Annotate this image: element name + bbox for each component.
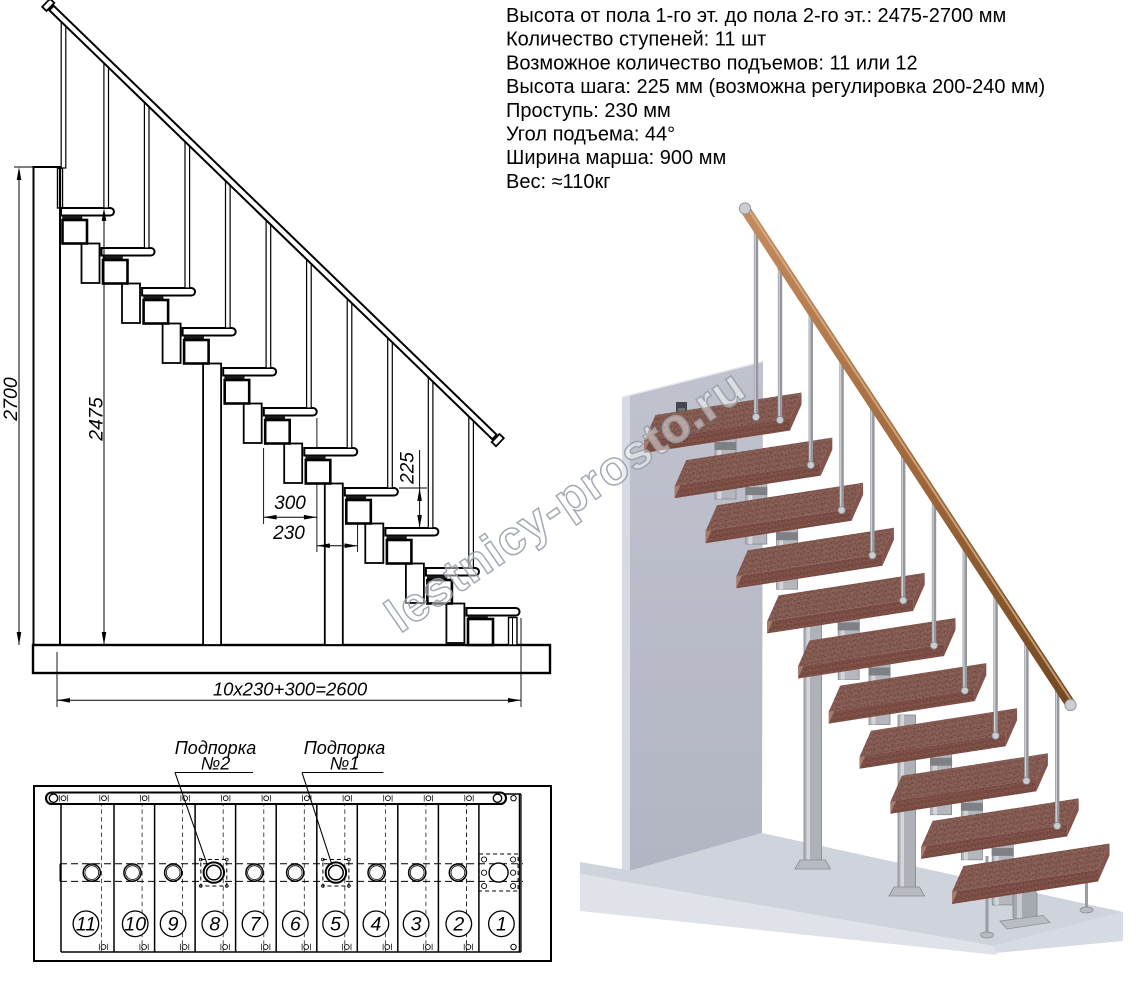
svg-text:7: 7: [250, 914, 262, 936]
svg-text:9: 9: [168, 914, 179, 936]
svg-text:Высота шага: 225 мм (возможна: Высота шага: 225 мм (возможна регулировк…: [506, 76, 1045, 98]
svg-text:№2: №2: [201, 754, 231, 774]
svg-text:Количество ступеней: 11 шт: Количество ступеней: 11 шт: [506, 29, 766, 51]
svg-text:8: 8: [209, 914, 220, 936]
svg-text:300: 300: [274, 493, 306, 514]
svg-text:3: 3: [411, 914, 422, 936]
svg-text:Вес: ≈110кг: Вес: ≈110кг: [506, 171, 610, 193]
svg-text:11: 11: [76, 914, 96, 936]
svg-text:230: 230: [272, 523, 305, 544]
svg-text:225: 225: [398, 452, 419, 485]
svg-text:10x230+300=2600: 10x230+300=2600: [213, 679, 368, 700]
svg-text:5: 5: [330, 914, 341, 936]
svg-text:2475: 2475: [86, 397, 108, 442]
svg-text:1: 1: [496, 914, 507, 936]
svg-text:№1: №1: [330, 754, 360, 774]
svg-text:Ширина марша: 900 мм: Ширина марша: 900 мм: [506, 147, 726, 169]
svg-text:10: 10: [124, 914, 146, 936]
svg-text:2: 2: [452, 914, 464, 936]
svg-text:2700: 2700: [0, 377, 22, 422]
svg-text:Угол подъема: 44°: Угол подъема: 44°: [506, 124, 675, 146]
svg-text:Возможное количество подъемов:: Возможное количество подъемов: 11 или 12: [506, 52, 918, 74]
svg-text:4: 4: [370, 914, 381, 936]
svg-text:Высота от пола 1-го эт. до пол: Высота от пола 1-го эт. до пола 2-го эт.…: [506, 5, 1006, 27]
svg-text:Проступь: 230 мм: Проступь: 230 мм: [506, 100, 671, 122]
svg-text:6: 6: [290, 914, 301, 936]
